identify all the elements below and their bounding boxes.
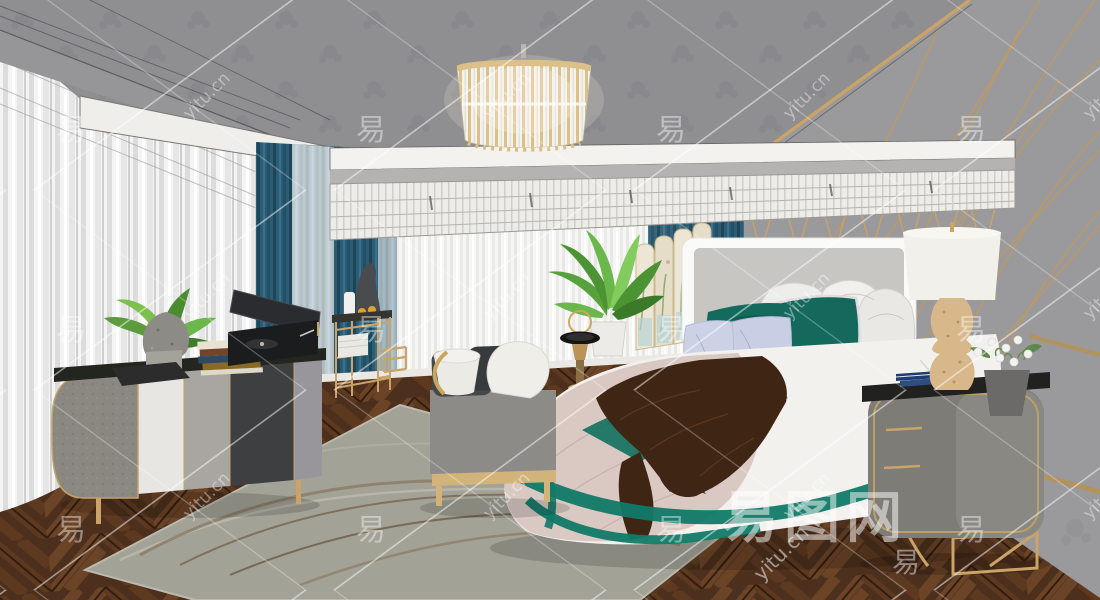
watermark-brand-glyph: 易	[892, 546, 920, 579]
watermark-brand-text: 易图网	[722, 486, 908, 551]
bedroom-render: 易 yitu.cn 易图网 yitu.cn 易	[0, 0, 1100, 600]
watermark-grid	[0, 0, 1100, 600]
watermark-overlay: 易 yitu.cn 易图网 yitu.cn 易	[0, 0, 1100, 600]
